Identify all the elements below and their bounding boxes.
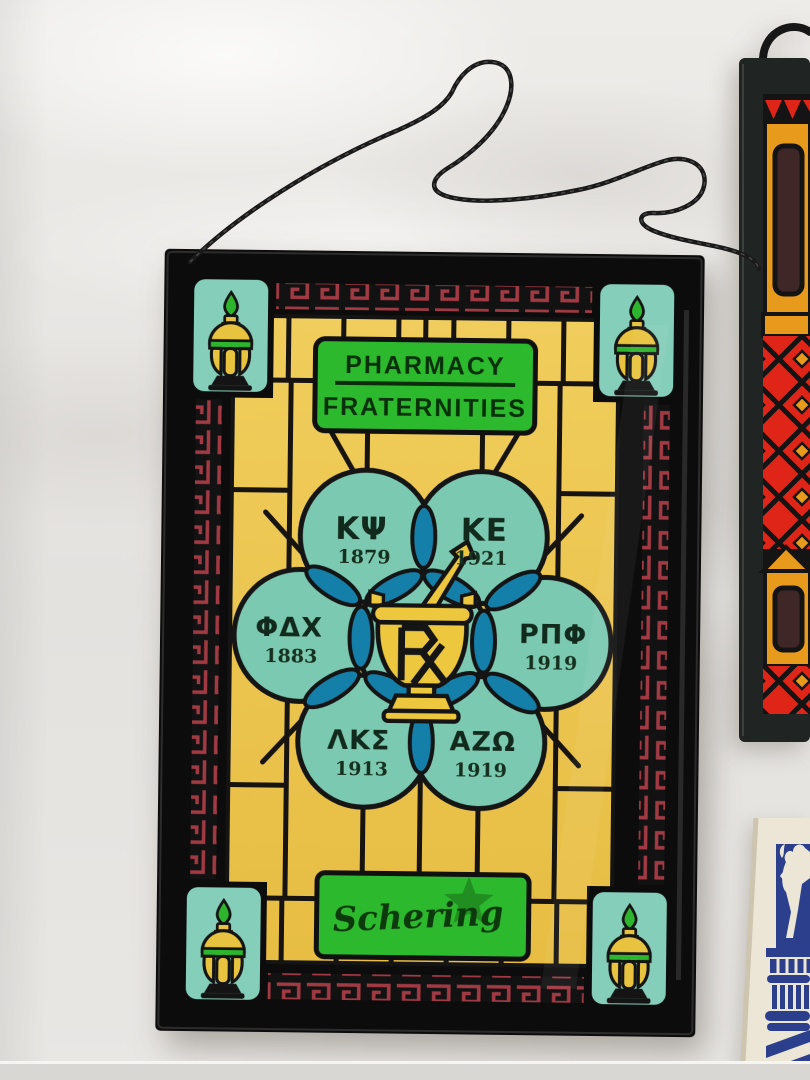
column-torus-1 — [765, 1011, 810, 1021]
plaque-artwork: PHARMACY FRATERNITIES Schering ΚΨ 1879 Κ… — [155, 249, 705, 1038]
fraternity-year: 1919 — [454, 759, 507, 782]
greek-key-border-top — [276, 283, 592, 313]
hanging-loop-cord — [763, 27, 810, 58]
fraternity-letters: ΦΔΧ — [255, 612, 323, 644]
fraternity-year: 1883 — [264, 645, 317, 668]
diamond-lattice-upper — [763, 336, 810, 549]
column-echinus — [767, 975, 810, 983]
column-torus-2 — [767, 1023, 810, 1031]
partial-red-panel — [733, 14, 810, 794]
fraternity-year: 1913 — [335, 758, 388, 781]
photo-stage: PHARMACY FRATERNITIES Schering ΚΨ 1879 Κ… — [0, 0, 810, 1080]
fraternity-letters: ΚΨ — [335, 511, 388, 548]
dark-window-top — [775, 146, 802, 294]
table-edge — [0, 1061, 810, 1080]
right-panel-art — [763, 94, 810, 714]
partial-horse-card — [730, 818, 810, 1080]
diamond-lattice-lower — [763, 666, 810, 714]
fraternity-letters: ΚΕ — [461, 512, 509, 549]
column-abacus — [766, 948, 810, 957]
header-line1: PHARMACY — [345, 351, 506, 381]
fraternity-letters: ΑΖΩ — [449, 726, 516, 758]
header-line2: FRATERNITIES — [323, 393, 527, 423]
brand-box: Schering — [316, 873, 529, 960]
dark-window-lower — [775, 588, 802, 650]
pharmacy-fraternities-plaque: PHARMACY FRATERNITIES Schering ΚΨ 1879 Κ… — [155, 249, 705, 1038]
brand-signature: Schering — [332, 893, 504, 940]
fraternity-letters: ΡΠΦ — [519, 619, 588, 651]
greek-key-border-bottom — [268, 973, 584, 1003]
fraternity-letters: ΛΚΣ — [327, 725, 391, 757]
header-box: PHARMACY FRATERNITIES — [315, 339, 536, 434]
fraternity-year: 1919 — [524, 652, 577, 675]
fraternity-year: 1879 — [337, 546, 390, 569]
orange-cornice — [763, 314, 810, 336]
fraternity-year: 1921 — [454, 547, 507, 570]
